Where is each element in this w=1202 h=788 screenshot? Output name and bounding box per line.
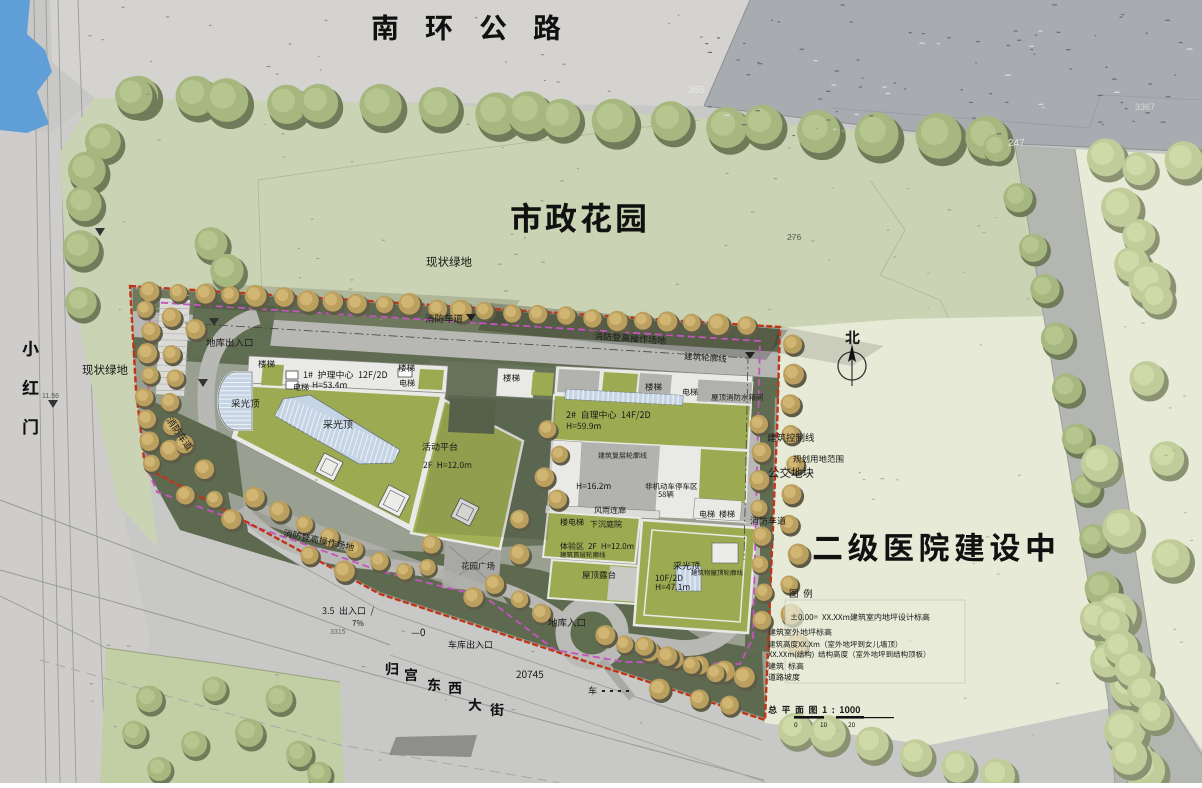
svg-text:3315: 3315	[633, 671, 649, 678]
svg-text:11.56: 11.56	[42, 393, 59, 400]
svg-text:276: 276	[787, 232, 801, 242]
svg-text:3315: 3315	[330, 629, 346, 636]
svg-text:355: 355	[688, 85, 705, 96]
svg-text:3367: 3367	[1135, 102, 1155, 112]
svg-text:247: 247	[1008, 138, 1025, 149]
